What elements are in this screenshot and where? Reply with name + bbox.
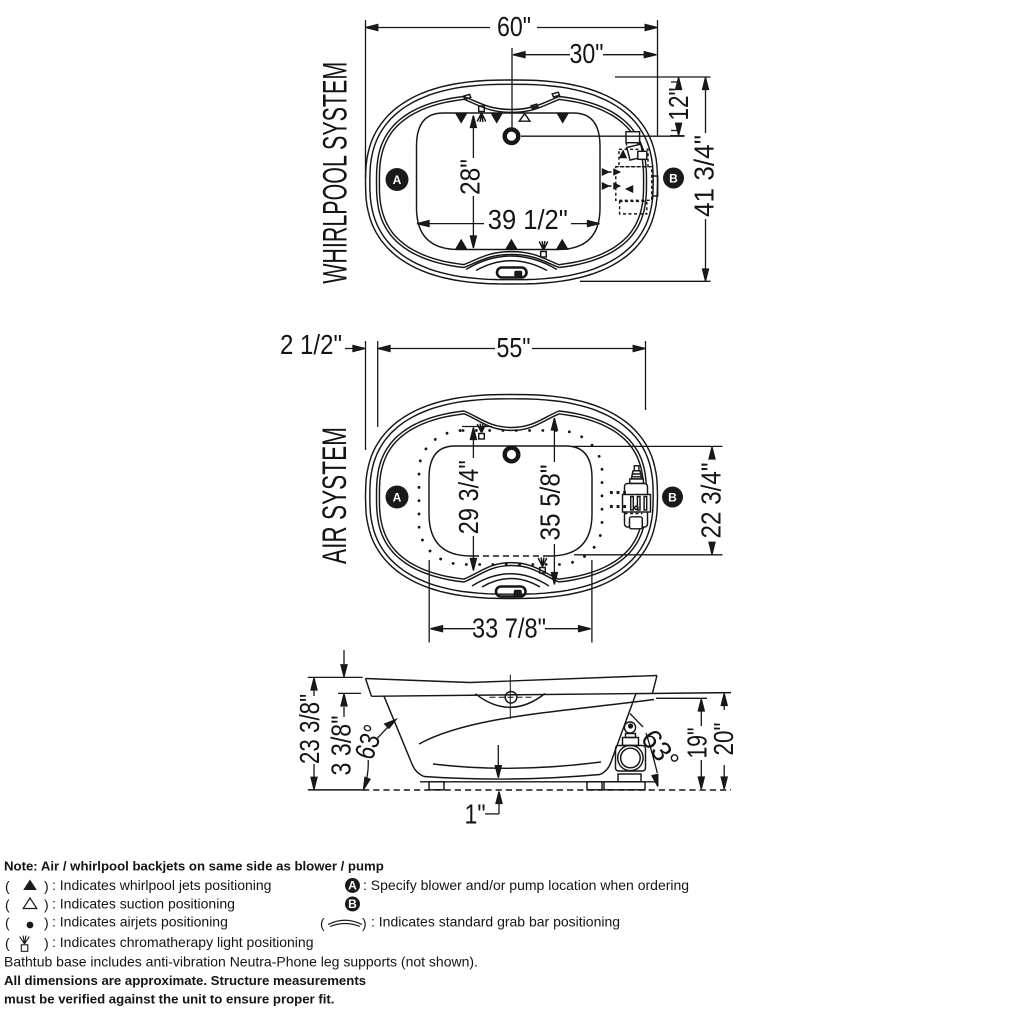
svg-text:(: ( [320, 915, 325, 931]
svg-text:B: B [669, 172, 678, 186]
svg-text:60": 60" [497, 11, 531, 42]
svg-text:A: A [393, 491, 402, 505]
svg-text:A: A [393, 173, 402, 187]
svg-text:29 3/4": 29 3/4" [453, 460, 484, 534]
svg-text:Bathtub base includes anti-vib: Bathtub base includes anti-vibration Neu… [4, 954, 478, 970]
svg-text:20": 20" [708, 723, 739, 756]
svg-text:(: ( [5, 935, 10, 951]
svg-text:Note: Air / whirlpool backjets: Note: Air / whirlpool backjets on same s… [4, 859, 384, 874]
svg-text:: Indicates chromatherapy ligh: : Indicates chromatherapy light position… [52, 934, 313, 950]
svg-text:): ) [44, 915, 49, 931]
svg-text:B: B [348, 897, 357, 911]
svg-text:AIR SYSTEM: AIR SYSTEM [316, 427, 354, 564]
svg-text:A: A [348, 879, 357, 893]
svg-text:33 7/8": 33 7/8" [472, 612, 546, 643]
svg-text:(: ( [5, 878, 10, 894]
svg-text:: Specify blower and/or pump l: : Specify blower and/or pump location wh… [363, 877, 689, 893]
svg-text:(: ( [5, 915, 10, 931]
svg-text:(: ( [5, 897, 10, 913]
svg-text:B: B [668, 491, 677, 505]
svg-text:: Indicates airjets positionin: : Indicates airjets positioning [52, 914, 228, 930]
svg-text:22 3/4": 22 3/4" [696, 463, 727, 539]
svg-text:: Indicates whirlpool jets pos: : Indicates whirlpool jets positioning [52, 877, 271, 893]
svg-text:28": 28" [455, 159, 486, 195]
svg-text:must be verified against the u: must be verified against the unit to ens… [4, 992, 334, 1007]
svg-text:All dimensions are approximate: All dimensions are approximate. Structur… [4, 973, 366, 988]
svg-text:: Indicates suction positionin: : Indicates suction positioning [52, 896, 235, 912]
svg-text:): ) [44, 897, 49, 913]
svg-text:35 5/8": 35 5/8" [534, 465, 565, 541]
svg-text:12": 12" [663, 88, 694, 121]
svg-text:2 1/2": 2 1/2" [280, 329, 342, 360]
svg-text:): ) [44, 935, 49, 951]
svg-text:30": 30" [570, 38, 604, 69]
svg-text:): ) [44, 878, 49, 894]
svg-text:39 1/2": 39 1/2" [488, 204, 568, 235]
svg-text:23 3/8": 23 3/8" [294, 694, 325, 764]
svg-text:WHIRLPOOL SYSTEM: WHIRLPOOL SYSTEM [317, 62, 355, 284]
svg-text:41 3/4": 41 3/4" [689, 135, 720, 217]
svg-text:1": 1" [465, 799, 486, 830]
svg-text:: Indicates standard grab bar: : Indicates standard grab bar positionin… [371, 914, 620, 930]
svg-text:55": 55" [497, 332, 531, 363]
svg-text:): ) [362, 915, 367, 931]
